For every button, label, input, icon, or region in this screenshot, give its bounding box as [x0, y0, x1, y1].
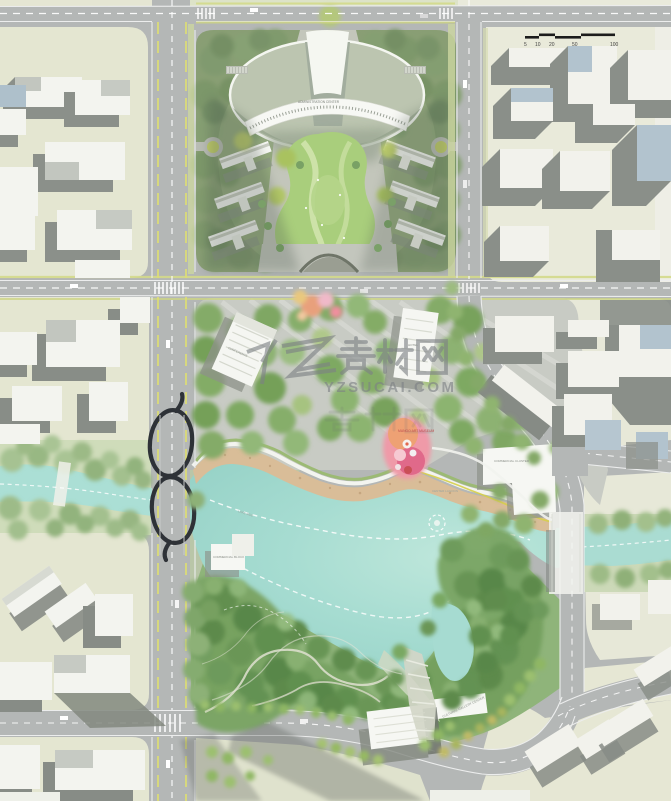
svg-text:HOTEL: HOTEL: [408, 343, 418, 347]
svg-text:100: 100: [610, 42, 619, 48]
svg-text:COMMERCIAL CLUSTER: COMMERCIAL CLUSTER: [494, 459, 530, 463]
svg-text:CENTER LAGOON: CENTER LAGOON: [432, 489, 458, 493]
svg-text:COMMERCIAL BLOCK: COMMERCIAL BLOCK: [213, 555, 244, 559]
svg-text:MANGO ART MUSEUM: MANGO ART MUSEUM: [398, 429, 434, 433]
svg-text:20: 20: [549, 42, 555, 48]
svg-text:ADMINISTRATION CENTER: ADMINISTRATION CENTER: [298, 100, 340, 104]
svg-text:50: 50: [572, 42, 578, 48]
svg-text:10: 10: [535, 42, 541, 48]
svg-text:YZSUCAI.COM: YZSUCAI.COM: [324, 379, 457, 396]
svg-text:5: 5: [524, 42, 527, 48]
